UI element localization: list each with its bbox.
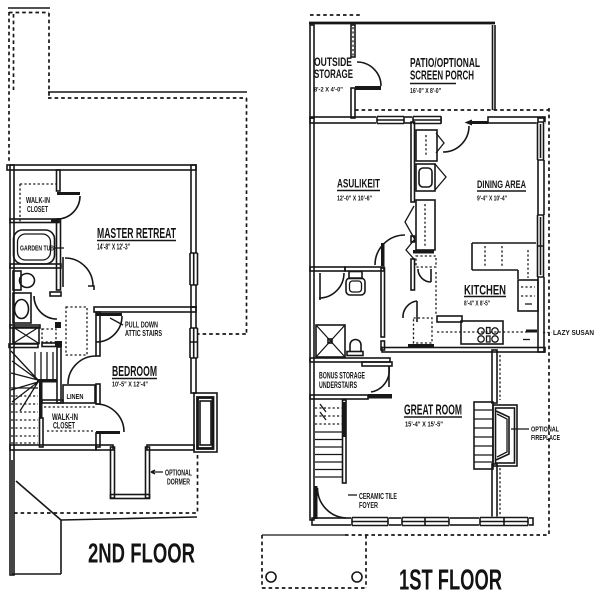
- svg-text:STORAGE: STORAGE: [314, 67, 353, 81]
- svg-text:2ND FLOOR: 2ND FLOOR: [88, 538, 195, 569]
- svg-text:9'-4" X 10'-4": 9'-4" X 10'-4": [477, 194, 507, 203]
- svg-text:OPTIONAL: OPTIONAL: [165, 469, 192, 478]
- svg-text:12'-0" X 10'-6": 12'-0" X 10'-6": [337, 194, 372, 203]
- svg-text:FIREPLACE: FIREPLACE: [531, 433, 560, 442]
- svg-text:CLOSET: CLOSET: [27, 204, 48, 214]
- svg-text:BEDROOM: BEDROOM: [112, 363, 157, 380]
- svg-text:1ST FLOOR: 1ST FLOOR: [399, 565, 502, 595]
- svg-text:LAZY SUSAN: LAZY SUSAN: [553, 328, 594, 337]
- svg-text:8'-2 X 4'-0": 8'-2 X 4'-0": [314, 87, 343, 94]
- svg-text:BONUS STORAGE: BONUS STORAGE: [319, 371, 365, 381]
- svg-text:10'-5" X 12'-4": 10'-5" X 12'-4": [112, 380, 148, 389]
- svg-text:FOYER: FOYER: [359, 501, 378, 510]
- svg-text:MASTER RETREAT: MASTER RETREAT: [97, 225, 176, 242]
- svg-text:8'-4" X 8'-5": 8'-4" X 8'-5": [464, 299, 490, 308]
- svg-text:ASULIKEIT: ASULIKEIT: [337, 177, 380, 191]
- svg-text:ATTIC STAIRS: ATTIC STAIRS: [125, 328, 162, 338]
- svg-text:CERAMIC TILE: CERAMIC TILE: [359, 492, 397, 501]
- svg-text:LINEN: LINEN: [67, 392, 84, 401]
- svg-text:DINING AREA: DINING AREA: [477, 179, 526, 191]
- svg-text:14'-8" X 12'-3": 14'-8" X 12'-3": [97, 243, 130, 252]
- svg-text:UNDERSTAIRS: UNDERSTAIRS: [319, 380, 357, 390]
- svg-text:KITCHEN: KITCHEN: [464, 283, 506, 298]
- svg-text:15'-4" X 15'-5": 15'-4" X 15'-5": [405, 420, 443, 429]
- svg-text:GREAT ROOM: GREAT ROOM: [404, 403, 462, 419]
- svg-text:16'-0" X 8'-0": 16'-0" X 8'-0": [410, 86, 441, 95]
- svg-text:SCREEN PORCH: SCREEN PORCH: [410, 68, 474, 83]
- svg-text:CLOSET: CLOSET: [53, 421, 75, 431]
- svg-text:GARDEN TUB: GARDEN TUB: [20, 244, 54, 253]
- svg-text:DORMER: DORMER: [167, 478, 190, 487]
